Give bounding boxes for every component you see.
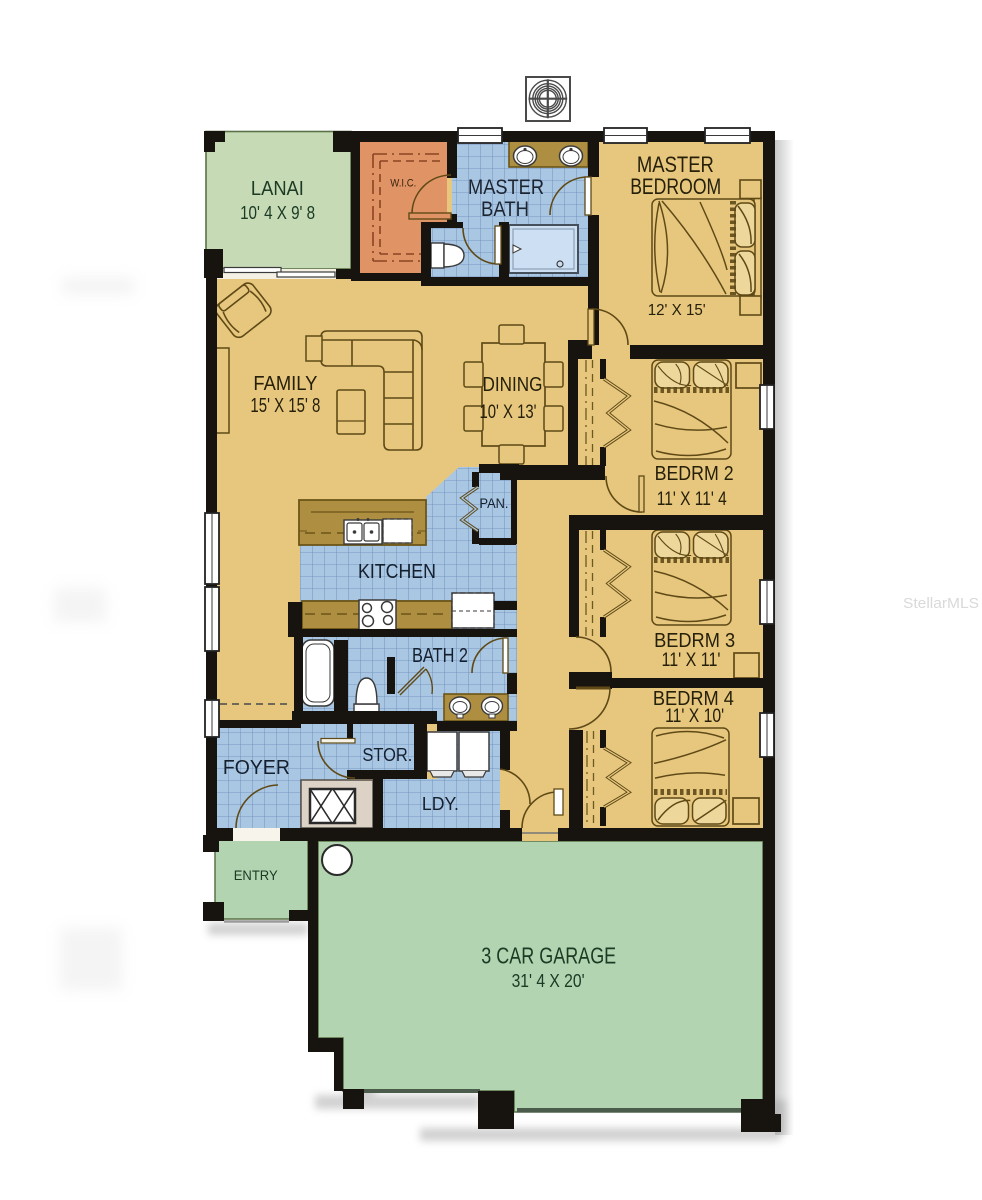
svg-text:31' 4 X 20': 31' 4 X 20'	[512, 970, 585, 991]
svg-text:W.I.C.: W.I.C.	[390, 178, 416, 190]
svg-text:15' X 15' 8: 15' X 15' 8	[250, 395, 320, 417]
svg-text:3 CAR GARAGE: 3 CAR GARAGE	[481, 943, 616, 969]
svg-text:10' X 13': 10' X 13'	[480, 402, 537, 423]
svg-text:BATH 2: BATH 2	[412, 645, 468, 667]
svg-text:FAMILY: FAMILY	[253, 373, 317, 395]
svg-text:ENTRY: ENTRY	[234, 867, 279, 883]
svg-text:DINING: DINING	[483, 374, 543, 396]
svg-text:11' X 10': 11' X 10'	[665, 706, 724, 727]
svg-text:StellarMLS: StellarMLS	[903, 596, 979, 612]
svg-text:11' X 11' 4: 11' X 11' 4	[657, 489, 727, 510]
svg-text:LANAI: LANAI	[251, 178, 304, 200]
svg-text:MASTER: MASTER	[468, 176, 544, 199]
svg-text:STOR.: STOR.	[362, 745, 412, 765]
svg-text:12' X 15': 12' X 15'	[648, 302, 706, 319]
svg-text:BEDROOM: BEDROOM	[630, 174, 721, 199]
svg-text:LDY.: LDY.	[422, 794, 459, 814]
svg-text:BATH: BATH	[481, 198, 529, 221]
svg-text:10' 4 X 9' 8: 10' 4 X 9' 8	[240, 203, 315, 223]
svg-text:BEDRM 3: BEDRM 3	[654, 630, 735, 652]
svg-text:11' X 11': 11' X 11'	[662, 650, 721, 671]
svg-text:BEDRM 2: BEDRM 2	[655, 463, 734, 485]
svg-text:PAN.: PAN.	[480, 495, 509, 511]
svg-text:KITCHEN: KITCHEN	[358, 561, 436, 583]
svg-text:FOYER: FOYER	[223, 757, 290, 779]
